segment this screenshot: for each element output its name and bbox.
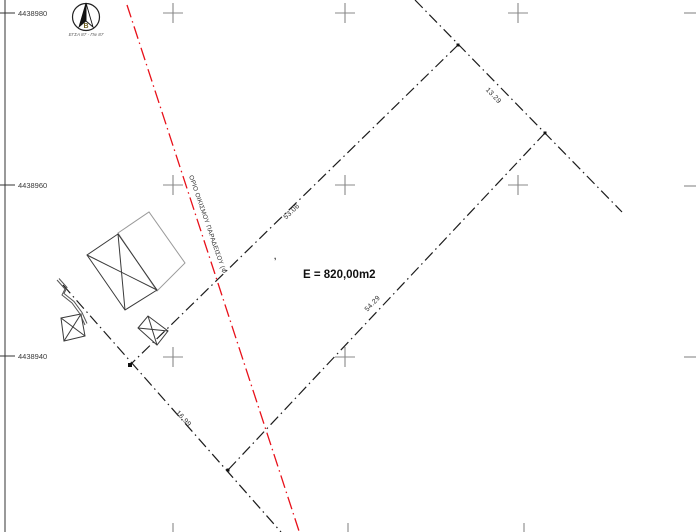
grid-crosses bbox=[163, 3, 696, 532]
grid-cross bbox=[335, 347, 355, 367]
grid-cross bbox=[335, 3, 355, 23]
north-letter: Β bbox=[83, 23, 88, 30]
survey-plan-canvas: 4438980 4438960 4438940 bbox=[0, 0, 696, 532]
dimension-label-54: 54.29 bbox=[364, 295, 382, 314]
settlement-boundary-red-line bbox=[127, 5, 299, 531]
building-diagonal bbox=[64, 314, 81, 341]
grid-cross bbox=[163, 175, 183, 195]
corner-point bbox=[227, 469, 230, 472]
grid-cross bbox=[508, 175, 528, 195]
corner-point bbox=[457, 44, 460, 47]
parcel-corner-points bbox=[128, 44, 547, 472]
settlement-boundary-label: ΟΡΙΟ ΟΙΚΙΣΜΟΥ ΠΑΡΑΔΕΙΣΟΥ (Φ bbox=[187, 174, 227, 274]
grid-cross bbox=[335, 175, 355, 195]
corner-point bbox=[544, 132, 547, 135]
parcel-area-label: E = 820,00m2 bbox=[303, 269, 376, 281]
building-diagonal bbox=[87, 255, 157, 290]
boundary-line-southeast-54.29 bbox=[228, 133, 545, 470]
point-mark: , bbox=[274, 252, 276, 261]
dimension-label-53: 53.06 bbox=[283, 203, 302, 221]
northing-label-1: 4438980 bbox=[18, 9, 47, 18]
proposed-building-outline bbox=[118, 212, 185, 291]
corner-point-A bbox=[128, 363, 132, 367]
north-arrow: Β bbox=[73, 3, 100, 31]
grid-cross bbox=[508, 3, 528, 23]
northing-label-3: 4438940 bbox=[18, 352, 47, 361]
outbuilding-1 bbox=[138, 316, 168, 345]
buildings bbox=[57, 212, 185, 345]
dimension-label-16: 16.99 bbox=[174, 410, 192, 429]
map-frame bbox=[0, 0, 15, 532]
datum-label: ΕΓΣΑ 87 - Πιν 87 bbox=[69, 32, 104, 37]
grid-cross bbox=[163, 347, 183, 367]
boundary-line-southwest-16.99 bbox=[63, 285, 281, 532]
main-building bbox=[87, 234, 157, 310]
grid-cross bbox=[163, 3, 183, 23]
northing-label-2: 4438960 bbox=[18, 181, 47, 190]
survey-drawing: 4438980 4438960 4438940 bbox=[0, 0, 696, 532]
parcel-boundary-lines bbox=[63, 0, 622, 532]
dimension-label-13: 13.29 bbox=[484, 87, 502, 106]
